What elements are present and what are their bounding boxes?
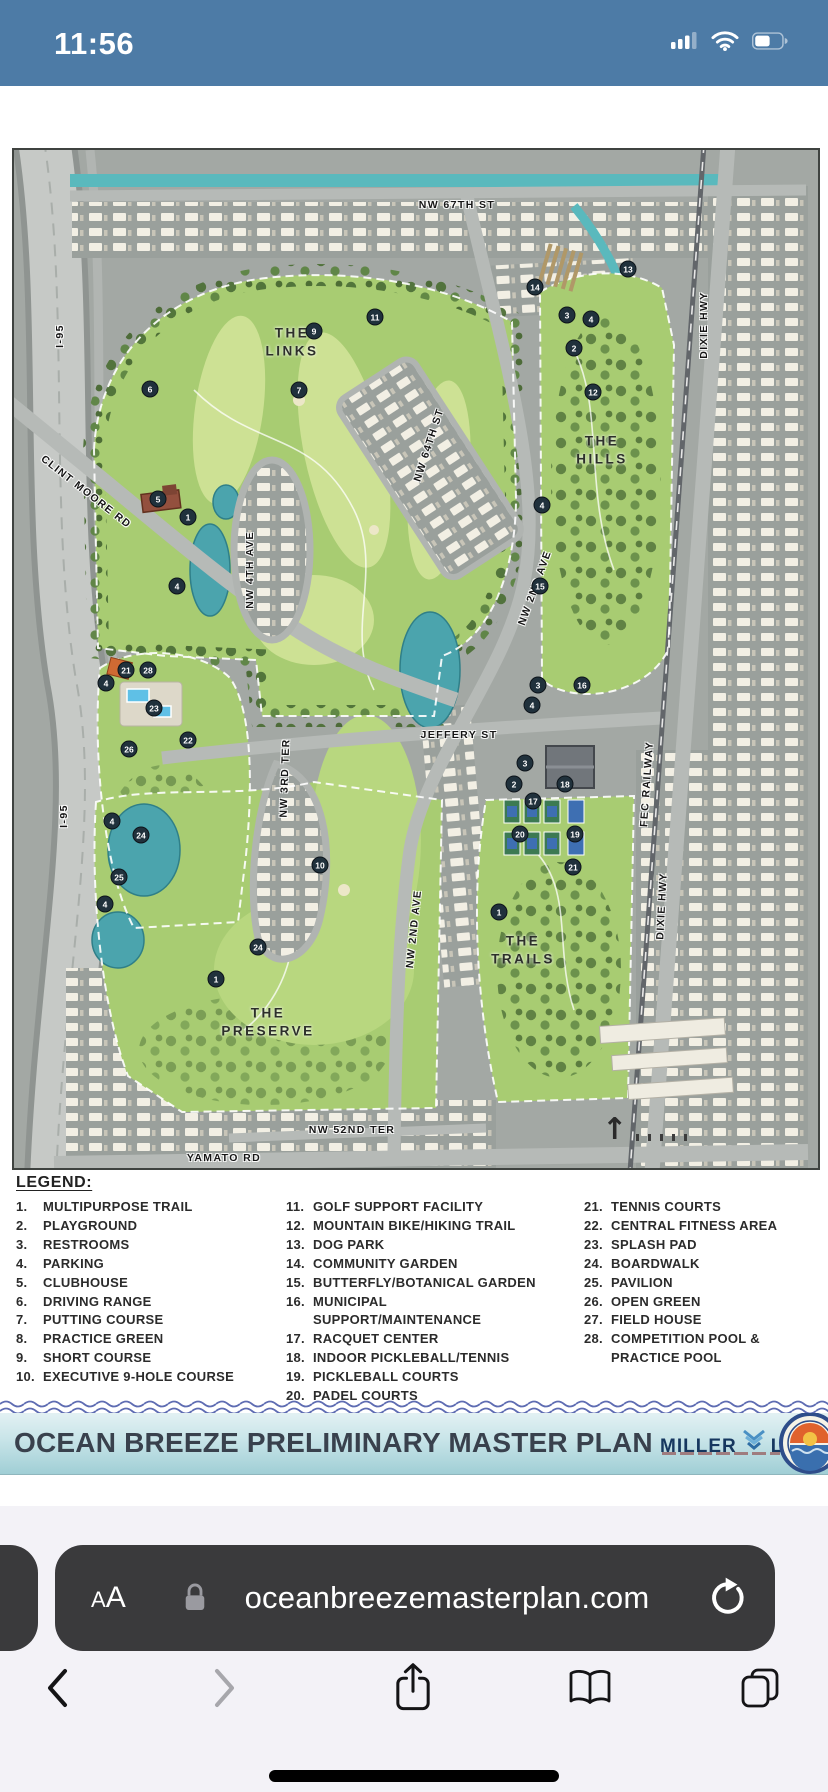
legend-item-label: COMMUNITY GARDEN [313,1255,458,1274]
legend-item-label: INDOOR PICKLEBALL/TENNIS [313,1349,509,1368]
legend-item: 16. MUNICIPAL SUPPORT/MAINTENANCE [286,1293,558,1331]
legend-item-number: 2. [16,1217,43,1236]
legend-item-label: DRIVING RANGE [43,1293,152,1312]
legend-item: 2. PLAYGROUND [16,1217,278,1236]
legend-item: 11. GOLF SUPPORT FACILITY [286,1198,558,1217]
legend-item-label: PLAYGROUND [43,1217,137,1236]
north-arrow-icon: ↑ [602,1112,627,1147]
reader-a-large: A [106,1581,126,1615]
legend-item-number: 19. [286,1368,313,1387]
city-seal [774,1413,828,1474]
legend-item-number: 5. [16,1274,43,1293]
legend-item-number: 23. [584,1236,611,1255]
scale-bar [636,1134,687,1141]
legend-item-label: BUTTERFLY/BOTANICAL GARDEN [313,1274,536,1293]
lock-icon [183,1581,207,1619]
legend-item: 26. OPEN GREEN [584,1293,822,1312]
safari-toolbar [0,1664,828,1734]
legend-item-number: 15. [286,1274,313,1293]
legend-item-number: 12. [286,1217,313,1236]
legend-item-number: 28. [584,1330,611,1368]
map-artwork [14,150,818,1168]
legend-item: 14. COMMUNITY GARDEN [286,1255,558,1274]
legend-item: 15. BUTTERFLY/BOTANICAL GARDEN [286,1274,558,1293]
legend-item-number: 9. [16,1349,43,1368]
legend-item-label: SHORT COURSE [43,1349,151,1368]
legend-item-number: 24. [584,1255,611,1274]
legend-item-number: 13. [286,1236,313,1255]
legend-item: 24. BOARDWALK [584,1255,822,1274]
park-parcel-hills [540,273,674,694]
legend-item-label: PARKING [43,1255,104,1274]
legend-item-label: DOG PARK [313,1236,385,1255]
legend-item: 10. EXECUTIVE 9-HOLE COURSE [16,1368,278,1387]
share-button[interactable] [389,1664,437,1712]
legend-item-number: 18. [286,1349,313,1368]
address-bar[interactable]: A A oceanbreezemasterplan.com [55,1545,775,1651]
legend-column-2: 11. GOLF SUPPORT FACILITY 12. MOUNTAIN B… [286,1198,558,1406]
legend-item: 4. PARKING [16,1255,278,1274]
legend-item: 12. MOUNTAIN BIKE/HIKING TRAIL [286,1217,558,1236]
legend-item: 5. CLUBHOUSE [16,1274,278,1293]
reader-a-small: A [91,1587,106,1613]
legend-item-label: TENNIS COURTS [611,1198,721,1217]
legend-item: 3. RESTROOMS [16,1236,278,1255]
legend-item-number: 3. [16,1236,43,1255]
legend-item-label: PRACTICE GREEN [43,1330,164,1349]
legend-item: 1. MULTIPURPOSE TRAIL [16,1198,278,1217]
legend-item-number: 6. [16,1293,43,1312]
previous-tab-peek[interactable] [0,1545,38,1651]
legend-item-label: RACQUET CENTER [313,1330,439,1349]
legend-item-label: SPLASH PAD [611,1236,697,1255]
plan-title-banner: OCEAN BREEZE PRELIMINARY MASTER PLAN MIL… [0,1413,828,1475]
legend-item-label: PAVILION [611,1274,673,1293]
legend-item-number: 1. [16,1198,43,1217]
legend-column-1: 1. MULTIPURPOSE TRAIL 2. PLAYGROUND 3. R… [16,1198,278,1387]
legend-item-number: 7. [16,1311,43,1330]
legend-item: 19. PICKLEBALL COURTS [286,1368,558,1387]
url-text[interactable]: oceanbreezemasterplan.com [217,1580,677,1616]
legend-item-label: FIELD HOUSE [611,1311,702,1330]
legend-item-label: COMPETITION POOL & PRACTICE POOL [611,1330,760,1368]
legend-item-number: 21. [584,1198,611,1217]
legend-item-label: PICKLEBALL COURTS [313,1368,459,1387]
legend-item: 7. PUTTING COURSE [16,1311,278,1330]
legend-item-number: 26. [584,1293,611,1312]
legend-item-number: 25. [584,1274,611,1293]
legend-item: 18. INDOOR PICKLEBALL/TENNIS [286,1349,558,1368]
legend-item-label: CENTRAL FITNESS AREA [611,1217,777,1236]
legend-item-number: 4. [16,1255,43,1274]
legend-item-label: OPEN GREEN [611,1293,701,1312]
plan-title: OCEAN BREEZE PRELIMINARY MASTER PLAN [14,1427,653,1459]
wifi-icon [710,30,740,56]
status-bar: 11:56 [0,0,828,86]
legend-item-label: MUNICIPAL SUPPORT/MAINTENANCE [313,1293,558,1331]
legend-item-label: MOUNTAIN BIKE/HIKING TRAIL [313,1217,516,1236]
field-house-building [546,746,594,788]
legend-item: 22. CENTRAL FITNESS AREA [584,1217,822,1236]
legend-item: 17. RACQUET CENTER [286,1330,558,1349]
battery-icon [752,32,788,55]
legend-item: 28. COMPETITION POOL & PRACTICE POOL [584,1330,822,1368]
forward-button[interactable] [201,1664,249,1712]
legend-item-number: 17. [286,1330,313,1349]
legend-item-number: 14. [286,1255,313,1274]
safari-bottom-chrome: A A oceanbreezemasterplan.com [0,1506,828,1792]
reload-button[interactable] [707,1577,747,1624]
legend-item: 9. SHORT COURSE [16,1349,278,1368]
legend-column-3: 21. TENNIS COURTS 22. CENTRAL FITNESS AR… [584,1198,822,1368]
legend-item-number: 22. [584,1217,611,1236]
legend-item-label: EXECUTIVE 9-HOLE COURSE [43,1368,234,1387]
legend-item-label: GOLF SUPPORT FACILITY [313,1198,483,1217]
home-indicator[interactable] [269,1770,559,1782]
legend-title: LEGEND: [16,1174,92,1192]
tabs-button[interactable] [736,1664,784,1712]
legend-item-label: MULTIPURPOSE TRAIL [43,1198,193,1217]
legend-item: 27. FIELD HOUSE [584,1311,822,1330]
reader-mode-button[interactable]: A A [91,1581,126,1615]
legend-item-number: 11. [286,1198,313,1217]
legend-item-label: PUTTING COURSE [43,1311,163,1330]
legend-item-number: 27. [584,1311,611,1330]
site-plan-map: NW 67TH STI-95CLINT MOORE RDNW 4TH AVENW… [12,148,820,1170]
iphone-screen: 11:56 [0,0,828,1792]
webpage-content: NW 67TH STI-95CLINT MOORE RDNW 4TH AVENW… [0,86,828,1506]
bookmarks-button[interactable] [566,1664,614,1712]
legend-item: 23. SPLASH PAD [584,1236,822,1255]
legend-item: 8. PRACTICE GREEN [16,1330,278,1349]
back-button[interactable] [33,1664,81,1712]
legend-item: 25. PAVILION [584,1274,822,1293]
legend-item-label: CLUBHOUSE [43,1274,128,1293]
legend-item: 13. DOG PARK [286,1236,558,1255]
legend-item-number: 8. [16,1330,43,1349]
cellular-signal-icon [671,31,698,55]
legend-item-number: 16. [286,1293,313,1331]
legend-item: 6. DRIVING RANGE [16,1293,278,1312]
legend-item: 21. TENNIS COURTS [584,1198,822,1217]
legend-item-label: BOARDWALK [611,1255,700,1274]
legend-item-label: RESTROOMS [43,1236,129,1255]
logo-tagline [662,1452,780,1455]
clock-text: 11:56 [54,26,134,62]
legend-item-number: 10. [16,1368,43,1387]
